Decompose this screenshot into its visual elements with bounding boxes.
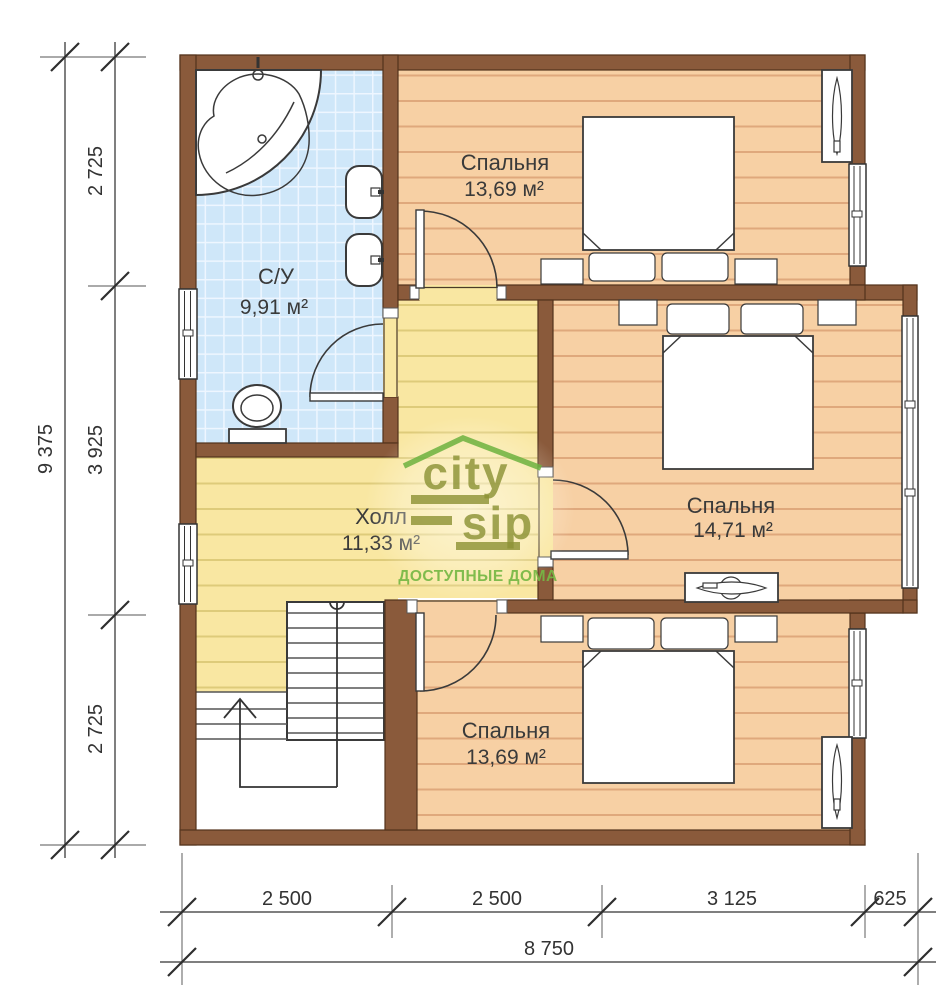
floor-plan-page: Спальня 13,69 м² С/У 9,91 м² Холл 11,33 …: [0, 0, 952, 1000]
nightstand: [735, 259, 777, 284]
wall-bedroom-top-bottom: [497, 285, 865, 300]
floor-plan-drawing: Спальня 13,69 м² С/У 9,91 м² Холл 11,33 …: [0, 0, 952, 1000]
stair-flight-box: [287, 602, 384, 740]
logo-bar: [456, 542, 520, 550]
nightstand: [541, 259, 583, 284]
pillow: [588, 618, 654, 649]
bay-window: [902, 316, 918, 588]
wall-left: [180, 55, 196, 845]
wardrobe: [822, 737, 852, 828]
bed: [583, 651, 734, 783]
door-leaf: [416, 210, 424, 288]
dim-bottom-segment-3: 3 125: [707, 888, 757, 910]
dimension-chain-bottom: 2 500 2 500 3 125 625 8 750: [160, 853, 936, 985]
wall-stairwell: [385, 600, 417, 830]
door-leaf: [416, 613, 424, 691]
dim-left-total: 9 375: [35, 424, 57, 474]
bedroom-middle-name: Спальня: [687, 493, 775, 518]
toilet-tank: [229, 429, 286, 443]
watermark-logo: city sip ДОСТУПНЫЕ ДОМА: [365, 416, 575, 600]
wall-bathroom-right-upper: [383, 55, 398, 317]
bedroom-top-name: Спальня: [461, 150, 549, 175]
dim-left-segment-1: 2 725: [85, 146, 107, 196]
dim-bottom-segment-1: 2 500: [262, 888, 312, 910]
nightstand: [541, 616, 583, 642]
door-leaf: [310, 393, 383, 401]
nightstand: [818, 300, 856, 325]
dim-left-segment-3: 2 725: [85, 704, 107, 754]
pillow: [667, 304, 729, 334]
wardrobe: [822, 70, 852, 162]
wall-bathroom-bottom: [196, 443, 398, 457]
bedroom-middle-area: 14,71 м²: [693, 519, 773, 542]
bedroom-bottom-window: [849, 629, 866, 738]
dimension-chain-left: 2 725 3 925 2 725 9 375: [35, 42, 146, 859]
bed: [583, 117, 734, 250]
bedroom-bottom-name: Спальня: [462, 718, 550, 743]
logo-bar: [411, 516, 452, 525]
bedroom-top-area: 13,69 м²: [464, 178, 544, 201]
bedroom-bottom-area: 13,69 м²: [466, 746, 546, 769]
pillow: [741, 304, 803, 334]
sink-2: [346, 234, 384, 286]
logo-tagline: ДОСТУПНЫЕ ДОМА: [398, 568, 557, 585]
bedroom-top-window: [849, 164, 866, 266]
pillow: [589, 253, 655, 281]
dresser: [685, 573, 778, 602]
bathroom-name: С/У: [258, 264, 295, 289]
logo-word-city: city: [422, 447, 509, 499]
pillow: [661, 618, 728, 649]
hall-window: [179, 524, 197, 604]
dim-bottom-segment-4: 625: [873, 888, 906, 910]
bathroom-window: [179, 289, 197, 379]
wall-bathroom-right-lower: [383, 397, 398, 443]
pillow: [662, 253, 728, 281]
nightstand: [735, 616, 777, 642]
wall-top: [180, 55, 865, 70]
logo-word-sip: sip: [462, 497, 534, 549]
bed: [663, 336, 813, 469]
toilet: [229, 385, 286, 443]
sink-1: [346, 166, 384, 218]
bathroom-area: 9,91 м²: [240, 296, 308, 319]
dim-bottom-segment-2: 2 500: [472, 888, 522, 910]
dim-bottom-total: 8 750: [524, 938, 574, 960]
nightstand: [619, 300, 657, 325]
wall-bottom: [180, 830, 865, 845]
door-leaf: [551, 551, 628, 559]
dim-left-segment-2: 3 925: [85, 425, 107, 475]
